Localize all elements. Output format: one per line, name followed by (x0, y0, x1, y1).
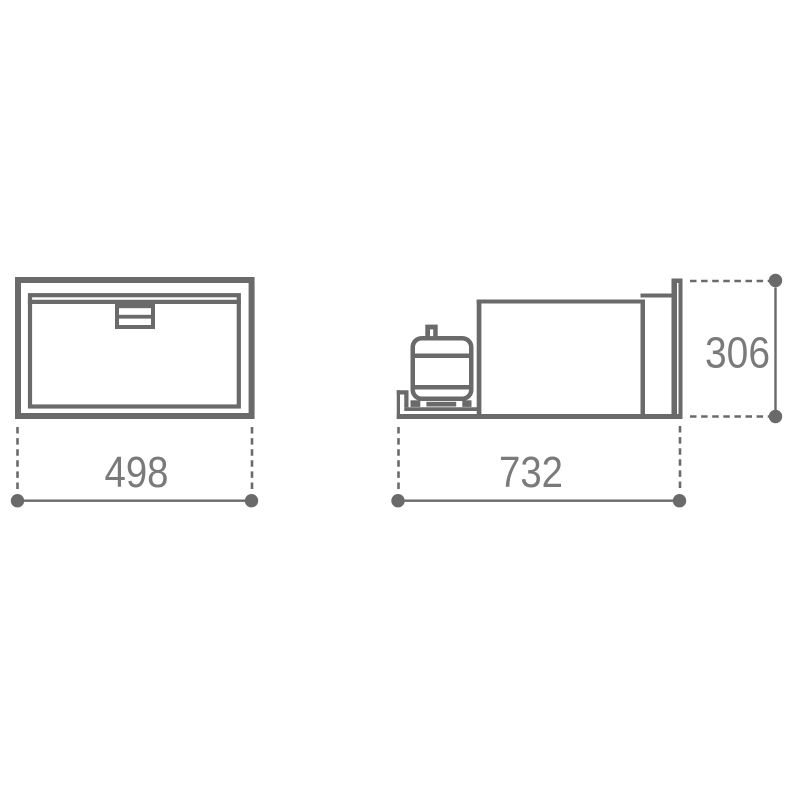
svg-text:306: 306 (705, 329, 770, 378)
svg-text:732: 732 (499, 448, 563, 497)
svg-text:498: 498 (105, 448, 169, 497)
